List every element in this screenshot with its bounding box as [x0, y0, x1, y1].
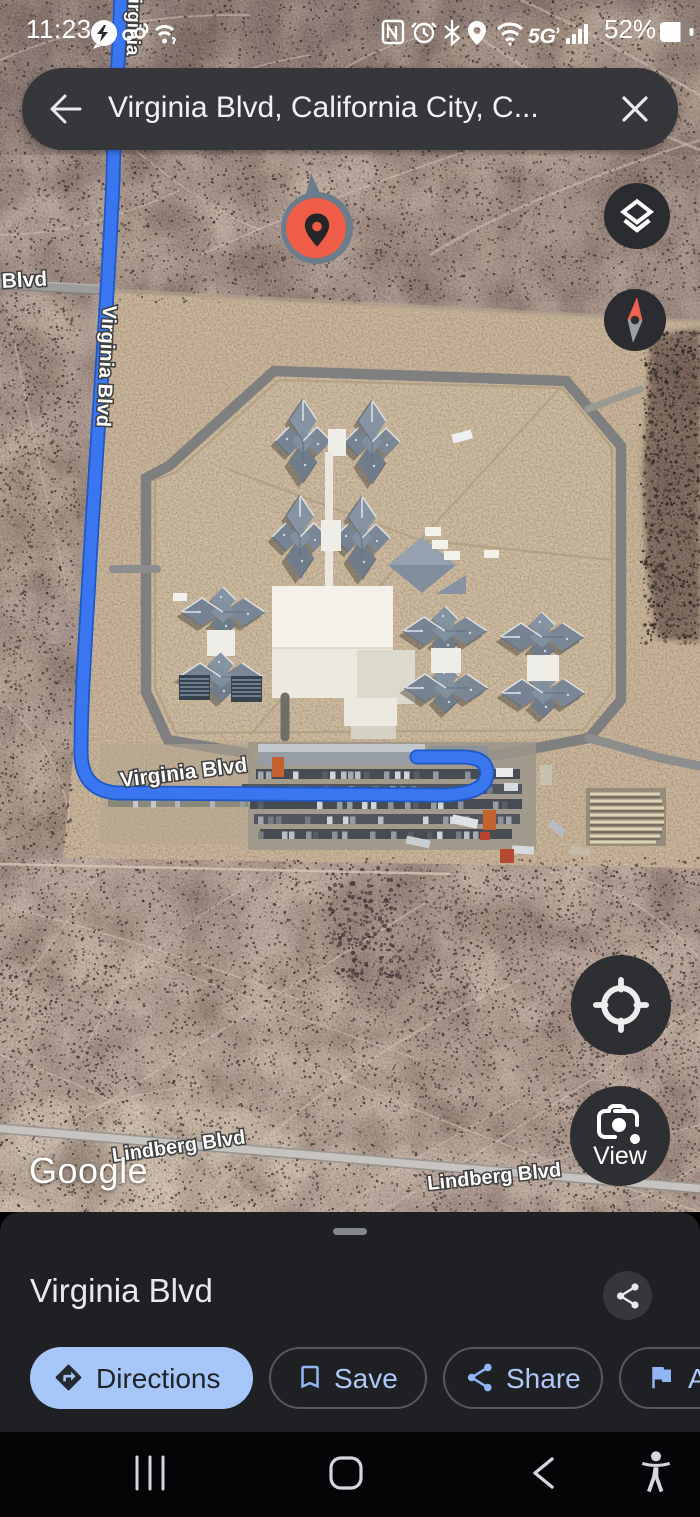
svg-text:5G: 5G [528, 25, 556, 48]
svg-text:Blvd: Blvd [1, 268, 48, 293]
